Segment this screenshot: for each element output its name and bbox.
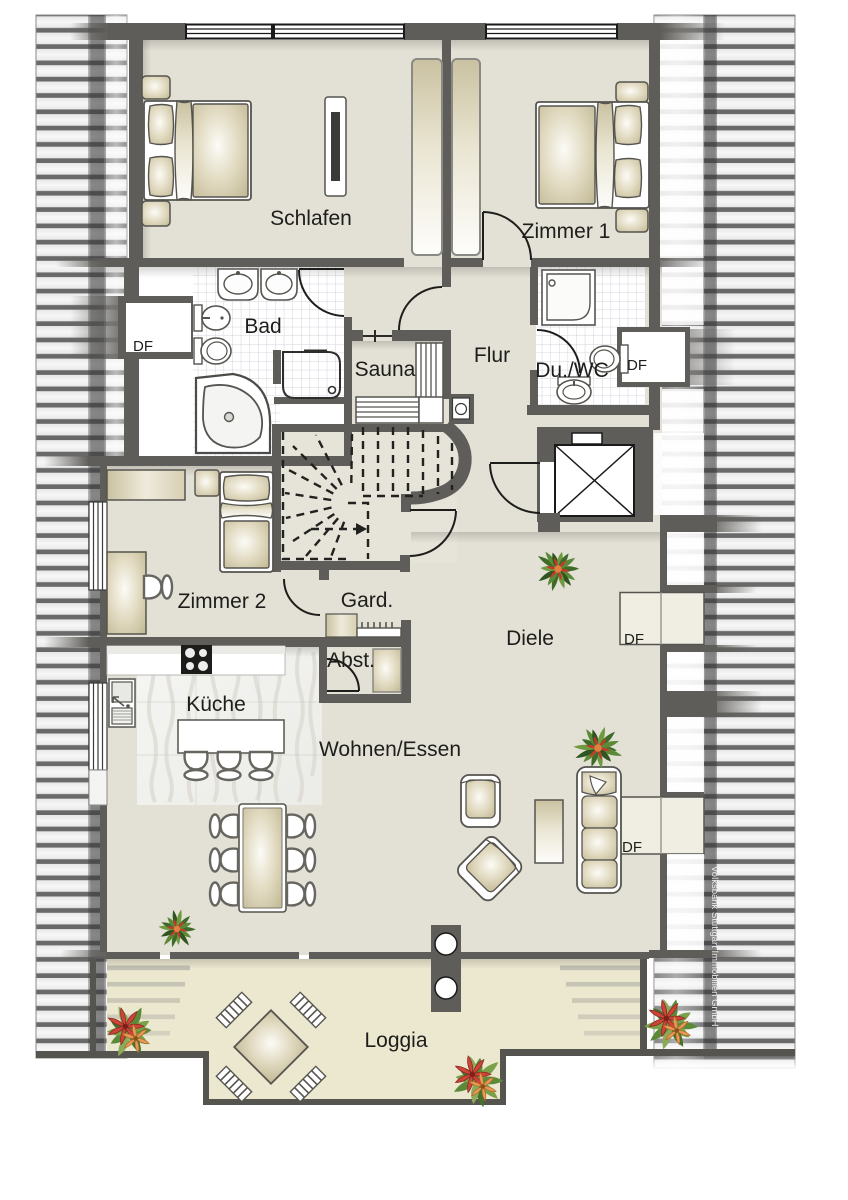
svg-text:DF: DF — [627, 357, 647, 374]
svg-text:Flur: Flur — [474, 344, 510, 367]
svg-text:Zimmer 1: Zimmer 1 — [522, 220, 611, 243]
svg-text:Bad: Bad — [244, 315, 281, 338]
svg-text:Volksbank Stuttgart Immobilien: Volksbank Stuttgart Immobilien GmbH — [709, 866, 720, 1027]
svg-text:Sauna: Sauna — [355, 358, 416, 381]
svg-text:Gard.: Gard. — [341, 589, 394, 612]
svg-text:Du./WC: Du./WC — [535, 359, 609, 382]
svg-text:Diele: Diele — [506, 627, 554, 650]
svg-text:Zimmer 2: Zimmer 2 — [178, 590, 267, 613]
svg-text:Küche: Küche — [186, 693, 246, 716]
svg-text:Wohnen/Essen: Wohnen/Essen — [319, 738, 461, 761]
svg-text:DF: DF — [622, 839, 642, 856]
svg-text:DF: DF — [133, 338, 153, 355]
svg-text:Loggia: Loggia — [364, 1029, 427, 1052]
svg-text:Schlafen: Schlafen — [270, 207, 352, 230]
svg-text:Abst.: Abst. — [327, 649, 375, 672]
svg-text:DF: DF — [624, 631, 644, 648]
